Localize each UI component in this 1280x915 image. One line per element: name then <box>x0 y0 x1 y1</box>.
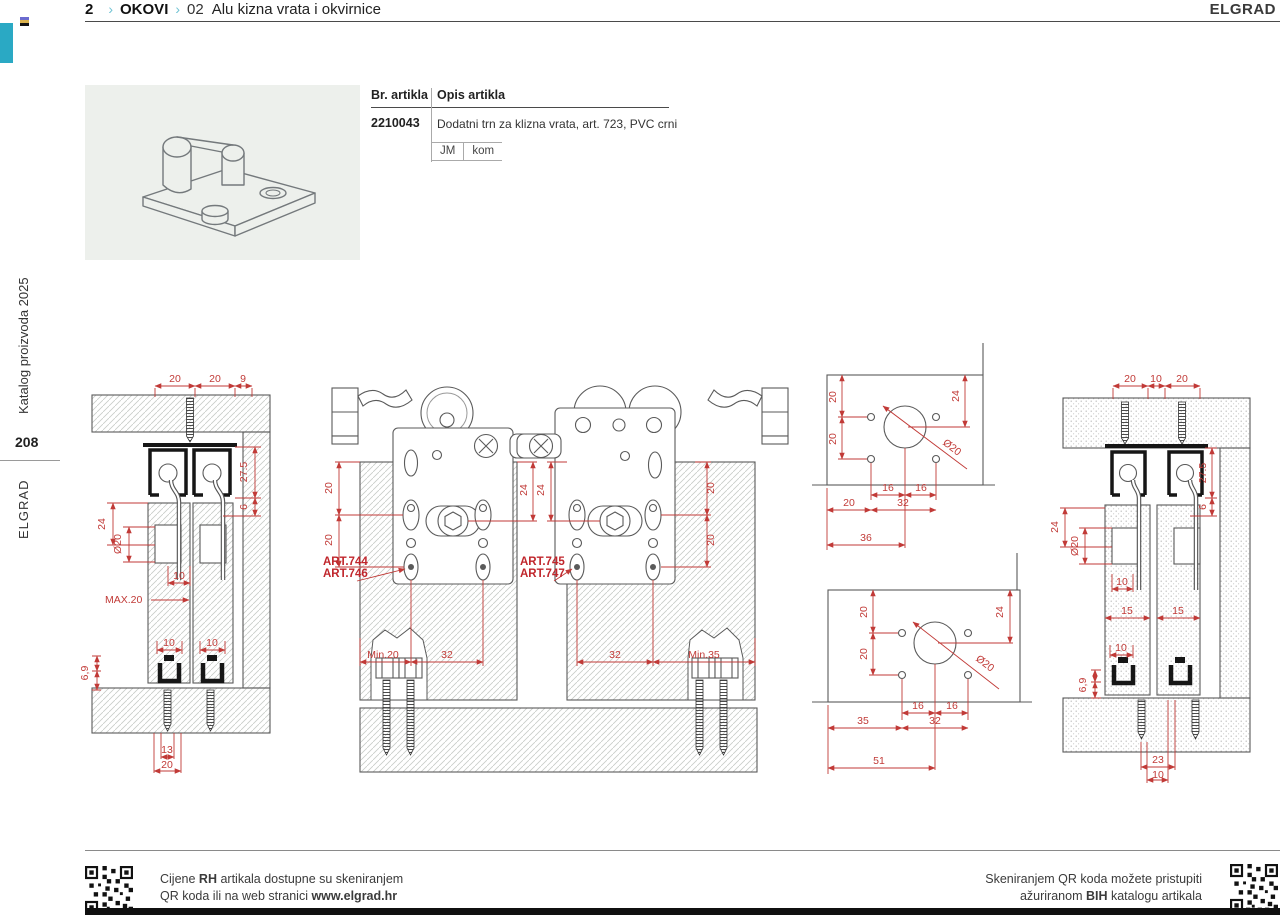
dim-label: 6 <box>1197 504 1209 510</box>
roller-hardware-drawings: 20 20 24 ART.744 ART.746 Min.20 32 24 20… <box>323 386 788 772</box>
dim-label: 20 <box>1176 373 1188 385</box>
dim-label: 32 <box>929 715 941 727</box>
footer-note-left: Cijene RH artikala dostupne su skeniranj… <box>160 871 403 905</box>
dim-label: 20 <box>169 373 181 385</box>
dim-label: 16 <box>946 700 958 712</box>
article-number[interactable]: 2210043 <box>371 116 420 130</box>
tab-color-marker <box>0 23 13 63</box>
dim-label: 10 <box>173 570 185 582</box>
dim-label: 20 <box>705 482 717 494</box>
dim-label: Ø20 <box>112 534 124 554</box>
dim-label: Min.20 <box>367 649 399 661</box>
section-drawing-right: 20 10 20 27.5 6 24 Ø20 10 15 15 10 6,9 2… <box>1049 373 1250 783</box>
dim-label: 6,9 <box>79 666 91 681</box>
dim-label: 24 <box>1049 521 1061 533</box>
dim-label: 20 <box>858 648 870 660</box>
column-header-article: Br. artikla <box>371 88 428 102</box>
article-table: Br. artikla Opis artikla 2210043 Dodatni… <box>371 88 681 168</box>
dim-label: 16 <box>882 482 894 494</box>
sidebar-divider <box>0 460 60 461</box>
breadcrumb-section[interactable]: OKOVI <box>120 1 168 18</box>
dim-label: 15 <box>1121 605 1133 617</box>
article-ref-label: ART.745 <box>520 556 565 568</box>
breadcrumb: 2›OKOVI›02Alu kizna vrata i okvirnice <box>85 1 381 18</box>
dim-label: 10 <box>1115 642 1127 654</box>
article-description: Dodatni trn za klizna vrata, art. 723, P… <box>437 117 677 131</box>
dim-label: 20 <box>827 391 839 403</box>
chevron-icon: › <box>108 1 113 17</box>
header-divider <box>85 21 1280 22</box>
sidebar-brand-label: ELGRAD <box>16 489 31 539</box>
reg-stripe <box>20 23 29 26</box>
dim-label: 20 <box>705 534 717 546</box>
dim-label: 27.5 <box>238 462 250 483</box>
dim-label: 20 <box>858 606 870 618</box>
dim-label: 27.5 <box>1197 463 1209 484</box>
qr-code-rh[interactable] <box>85 866 133 914</box>
article-ref-label: ART.747 <box>520 568 565 580</box>
dim-label: 20 <box>1124 373 1136 385</box>
dim-label: 24 <box>950 390 962 402</box>
footer-text: QR koda ili na web stranici <box>160 889 311 903</box>
unit-label: JM <box>432 143 464 160</box>
dim-label: 9 <box>240 373 246 385</box>
footer-text-bold: BIH <box>1086 889 1108 903</box>
footer-text: ažuriranom <box>1020 889 1086 903</box>
dim-label: 20 <box>323 534 335 546</box>
dim-label: 20 <box>209 373 221 385</box>
dim-label: 32 <box>609 649 621 661</box>
brand-logo-top: ELGRAD <box>1210 1 1276 18</box>
dim-label: 10 <box>1152 769 1164 781</box>
column-header-description: Opis artikla <box>437 88 505 102</box>
dim-label: Ø20 <box>1069 536 1081 556</box>
dim-label: Min.35 <box>688 649 720 661</box>
unit-box: JM kom <box>431 142 502 161</box>
dim-label: 36 <box>860 532 872 544</box>
footer-text: katalogu artikala <box>1107 889 1202 903</box>
article-ref-label: ART.744 <box>323 556 368 568</box>
footer-divider <box>85 850 1280 851</box>
dim-label: 20 <box>161 759 173 771</box>
page-number: 208 <box>15 434 38 450</box>
dim-label: 16 <box>915 482 927 494</box>
footer-text: Cijene <box>160 872 199 886</box>
drill-plate-drawings: 20 20 24 Ø20 16 16 20 32 36 <box>812 343 1032 774</box>
dim-label: 6 <box>238 504 250 510</box>
dim-label: 32 <box>441 649 453 661</box>
print-registration-mark <box>20 17 29 26</box>
dim-label: 20 <box>843 497 855 509</box>
footer-black-bar <box>85 908 1280 915</box>
breadcrumb-code: 02 <box>187 1 204 18</box>
dim-label: 24 <box>518 484 530 496</box>
footer-link[interactable]: www.elgrad.hr <box>311 889 397 903</box>
catalog-page: 2›OKOVI›02Alu kizna vrata i okvirnice EL… <box>0 0 1280 915</box>
product-image <box>85 85 360 260</box>
dim-label: 24 <box>535 484 547 496</box>
dim-label: 20 <box>827 433 839 445</box>
sidebar-catalog-label: Katalog proizvoda 2025 <box>16 274 31 414</box>
dim-label: 20 <box>323 482 335 494</box>
article-ref-label: ART.746 <box>323 568 368 580</box>
dim-label: 10 <box>163 637 175 649</box>
qr-code-bih[interactable] <box>1230 864 1278 912</box>
unit-value: kom <box>464 143 502 160</box>
page-title: Alu kizna vrata i okvirnice <box>212 1 381 18</box>
dim-label: 24 <box>96 518 108 530</box>
dim-label: 24 <box>994 606 1006 618</box>
footer-text: artikala dostupne su skeniranjem <box>217 872 403 886</box>
dim-label: 10 <box>1150 373 1162 385</box>
footer-text-bold: RH <box>199 872 217 886</box>
chevron-icon: › <box>175 1 180 17</box>
footer-text: Skeniranjem QR koda možete pristupiti <box>985 871 1202 888</box>
dim-label: 35 <box>857 715 869 727</box>
dim-label: 6,9 <box>1077 678 1089 693</box>
dim-label: 15 <box>1172 605 1184 617</box>
technical-drawings: 20 20 9 27.5 6 24 Ø20 10 MAX.20 10 10 6,… <box>55 340 1280 810</box>
dim-label: 13 <box>161 744 173 756</box>
section-drawing-left: 20 20 9 27.5 6 24 Ø20 10 MAX.20 10 10 6,… <box>79 373 270 773</box>
breadcrumb-level: 2 <box>85 1 93 18</box>
dim-label: 51 <box>873 755 885 767</box>
dim-label: 32 <box>897 497 909 509</box>
footer-note-right: Skeniranjem QR koda možete pristupiti až… <box>985 871 1202 905</box>
dim-label: 16 <box>912 700 924 712</box>
table-header-divider <box>371 107 669 108</box>
product-drawing <box>85 85 360 260</box>
dim-label: MAX.20 <box>105 594 143 606</box>
dim-label: 23 <box>1152 754 1164 766</box>
dim-label: 10 <box>206 637 218 649</box>
dim-label: 10 <box>1116 576 1128 588</box>
